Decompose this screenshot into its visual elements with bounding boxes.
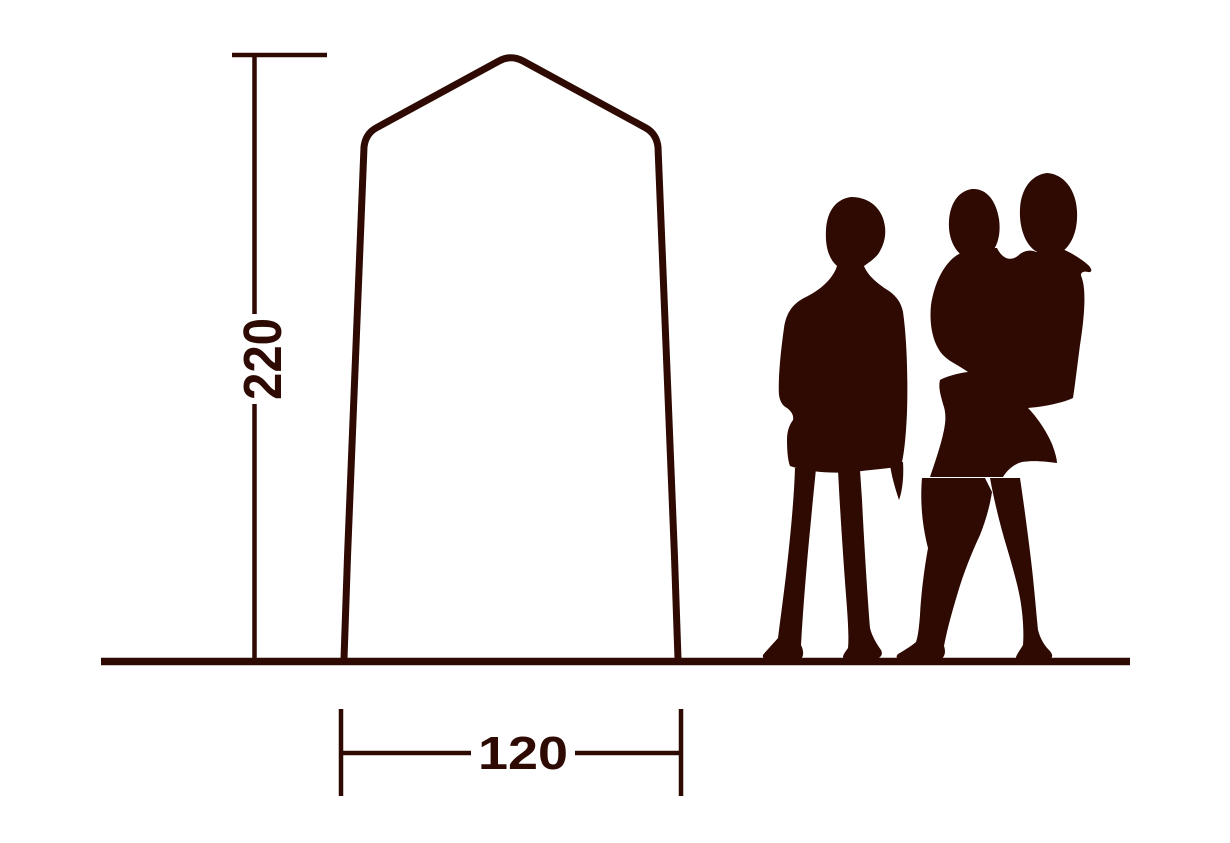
- width-dimension-label: 120: [478, 727, 568, 779]
- woman-left-leg: [763, 468, 816, 660]
- woman-hand: [890, 462, 903, 500]
- mother-back-leg: [990, 478, 1052, 661]
- tent-outline: [344, 58, 678, 659]
- woman-silhouette: [779, 197, 908, 473]
- dimension-labels-group: 220 120: [233, 318, 568, 779]
- woman-right-leg: [838, 470, 882, 661]
- mother-head: [1020, 173, 1077, 254]
- mother-front-leg: [897, 478, 992, 660]
- diagram-canvas: 220 120: [0, 0, 1230, 843]
- mother-child-torso: [930, 248, 1084, 477]
- tent-dimension-figure: 220 120: [0, 0, 1230, 843]
- height-dimension-label: 220: [233, 318, 293, 400]
- family-silhouette-group: [763, 173, 1091, 661]
